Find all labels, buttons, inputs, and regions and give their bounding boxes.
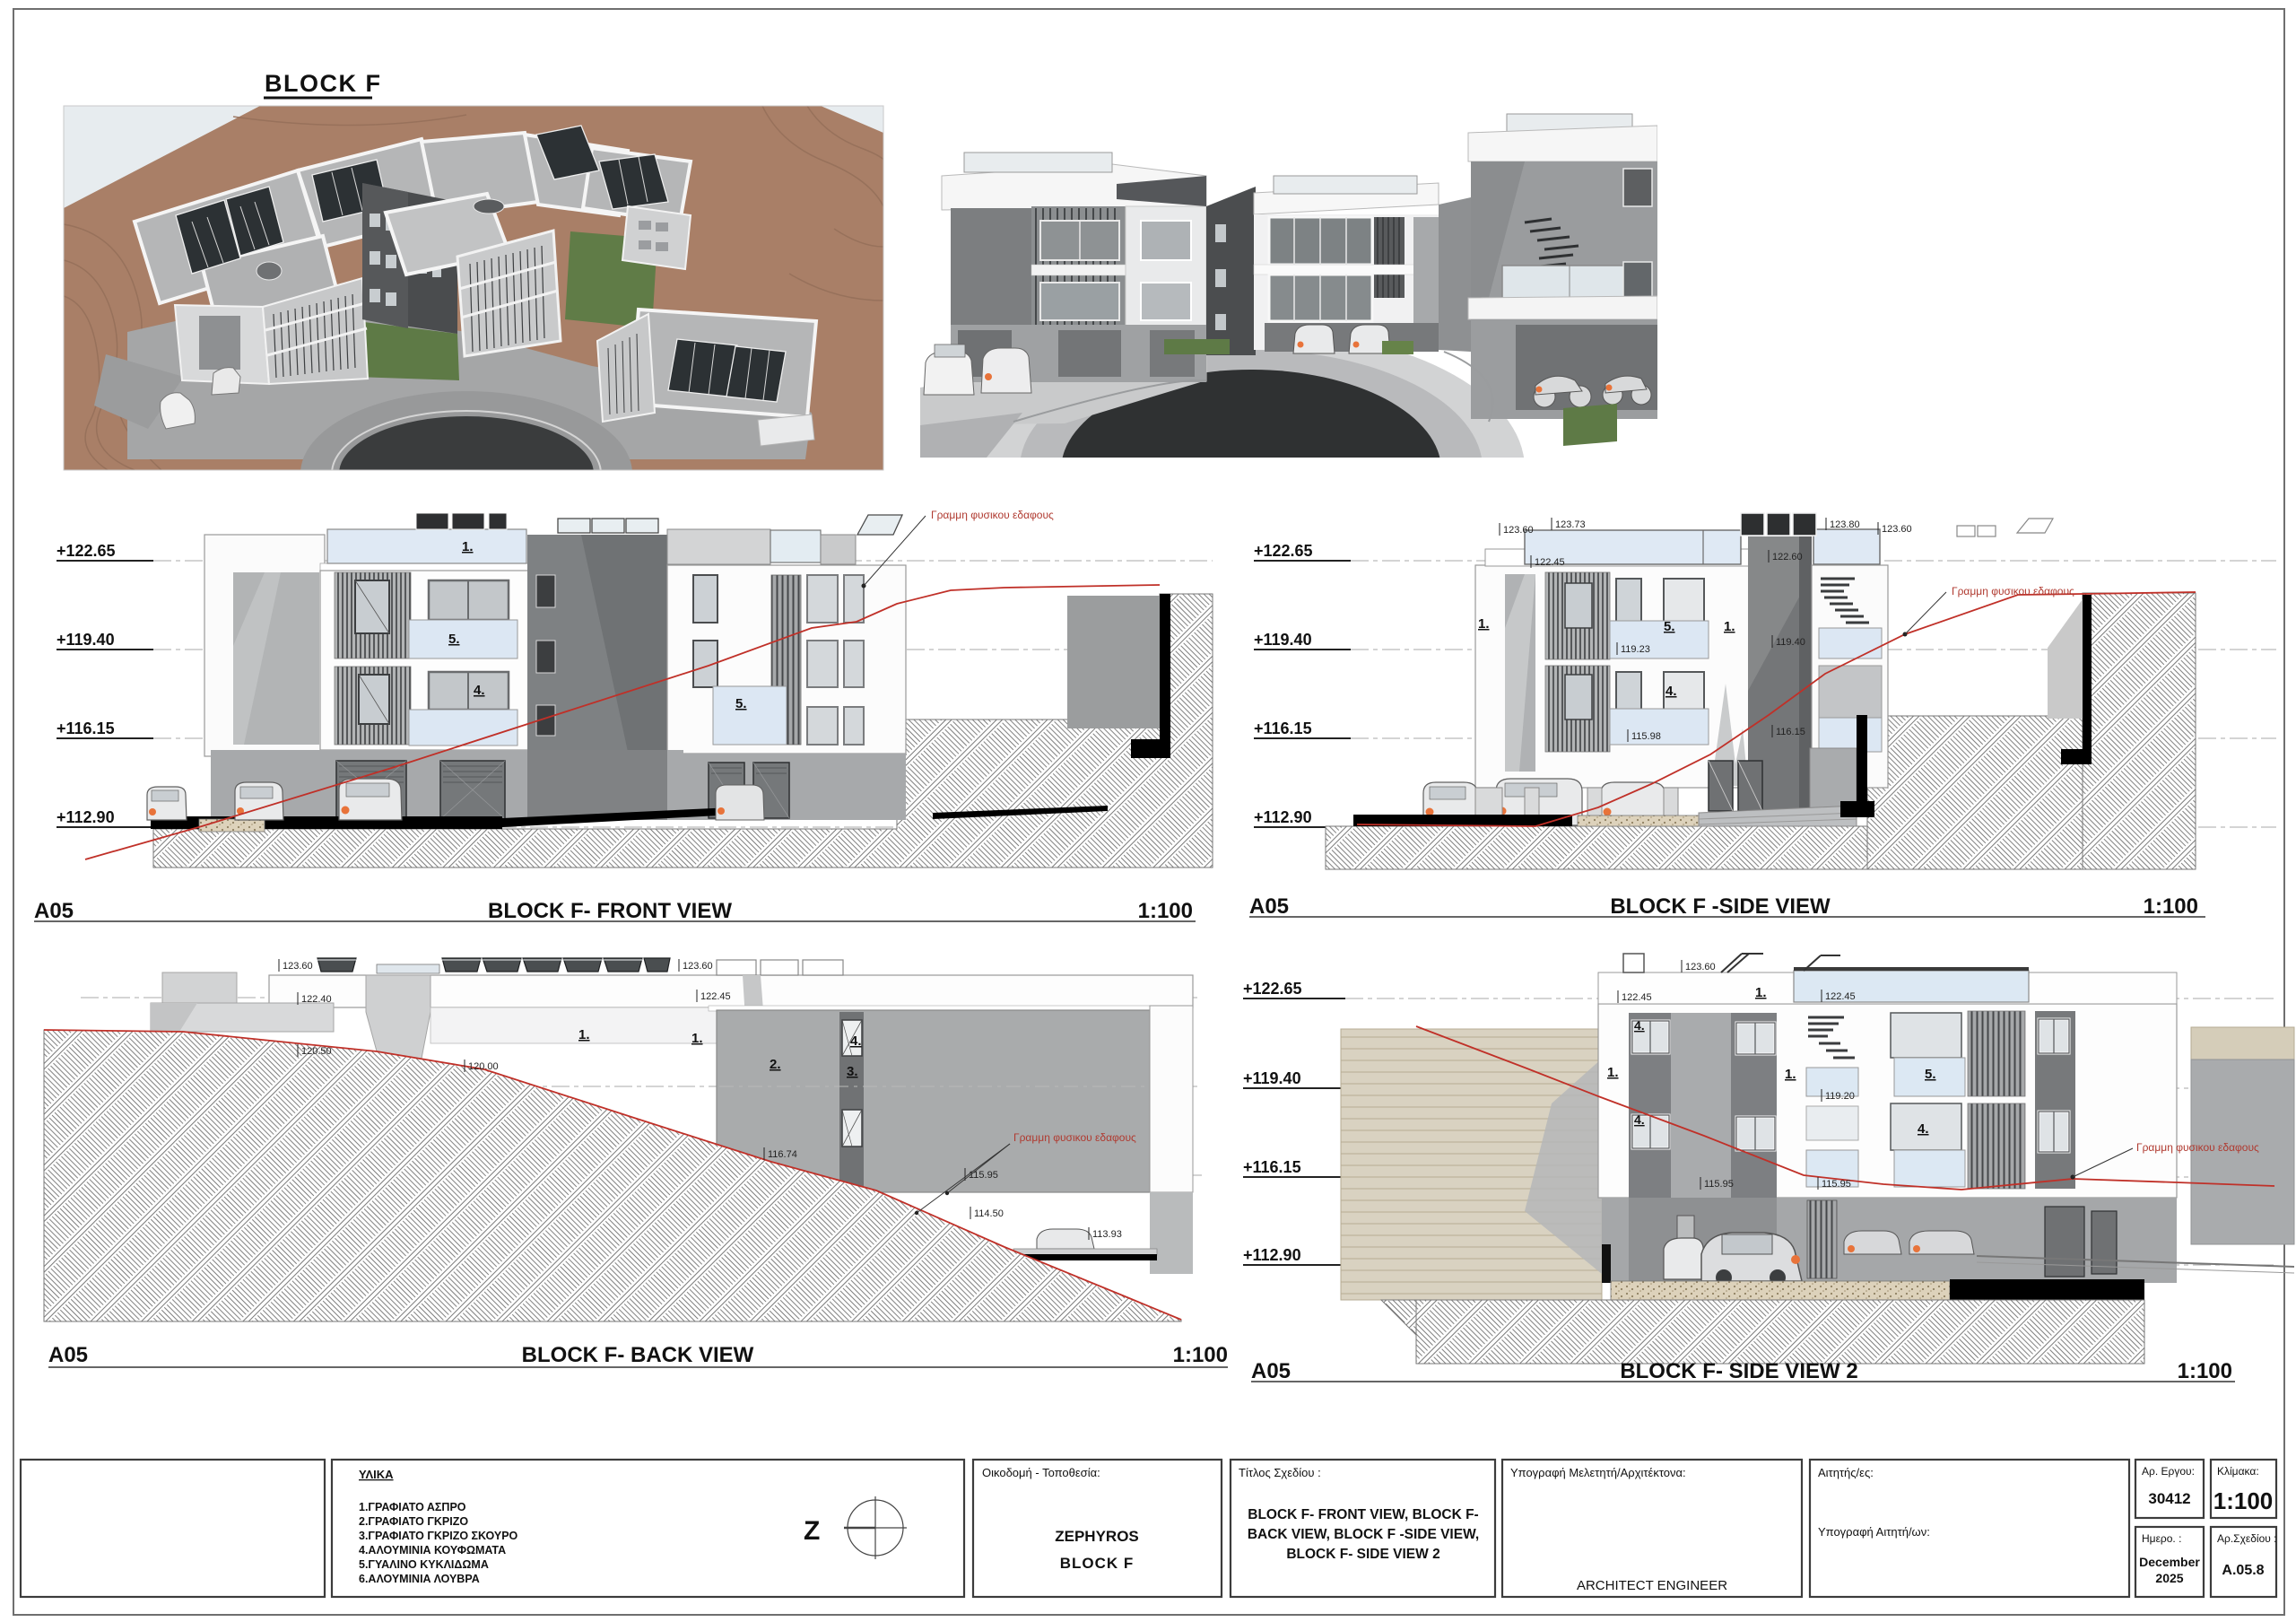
svg-text:123.60: 123.60	[1685, 962, 1716, 972]
svg-text:A.05.8: A.05.8	[2222, 1563, 2264, 1578]
svg-text:Αρ.Σχεδίου :: Αρ.Σχεδίου :	[2217, 1532, 2276, 1545]
svg-text:1.: 1.	[1724, 619, 1735, 634]
svg-text:123.60: 123.60	[1503, 525, 1534, 536]
svg-text:+122.65: +122.65	[1254, 542, 1313, 560]
svg-text:113.93: 113.93	[1092, 1229, 1122, 1240]
svg-text:116.74: 116.74	[768, 1149, 797, 1160]
svg-text:+119.40: +119.40	[1243, 1069, 1301, 1087]
svg-text:BLOCK F: BLOCK F	[1060, 1555, 1135, 1572]
svg-text:115.98: 115.98	[1631, 731, 1661, 742]
svg-text:5.: 5.	[448, 632, 460, 647]
svg-text:115.95: 115.95	[1822, 1179, 1851, 1190]
svg-text:+119.40: +119.40	[1254, 631, 1312, 649]
svg-text:1:100: 1:100	[1138, 899, 1193, 923]
svg-text:Υπογραφή Αιτητή/ων:: Υπογραφή Αιτητή/ων:	[1818, 1525, 1930, 1539]
svg-text:1.: 1.	[1607, 1065, 1619, 1080]
svg-text:4.ΑΛΟΥΜΙΝΙΑ ΚΟΥΦΩΜΑΤΑ: 4.ΑΛΟΥΜΙΝΙΑ ΚΟΥΦΩΜΑΤΑ	[359, 1544, 506, 1557]
svg-text:123.60: 123.60	[283, 961, 313, 972]
svg-text:+112.90: +112.90	[1243, 1246, 1301, 1264]
svg-text:122.45: 122.45	[1535, 557, 1565, 568]
svg-text:+122.65: +122.65	[57, 542, 116, 560]
svg-text:BLOCK F -SIDE VIEW: BLOCK F -SIDE VIEW	[1610, 894, 1831, 919]
svg-text:1.: 1.	[1755, 985, 1767, 1000]
svg-text:Οικοδομή - Τοποθεσία:: Οικοδομή - Τοποθεσία:	[982, 1466, 1100, 1479]
svg-text:122.45: 122.45	[700, 991, 731, 1002]
svg-text:2025: 2025	[2155, 1571, 2183, 1585]
svg-text:Αρ. Εργου:: Αρ. Εργου:	[2142, 1465, 2195, 1478]
svg-text:3.: 3.	[847, 1064, 858, 1079]
svg-text:5.: 5.	[1664, 619, 1675, 634]
svg-text:1.: 1.	[462, 539, 474, 554]
svg-text:122.45: 122.45	[1825, 991, 1856, 1002]
svg-text:5.: 5.	[735, 696, 747, 711]
svg-text:4.: 4.	[1634, 1018, 1645, 1033]
svg-text:1.ΓΡΑΦΙΑΤΟ ΑΣΠΡΟ: 1.ΓΡΑΦΙΑΤΟ ΑΣΠΡΟ	[359, 1501, 466, 1513]
svg-text:Γραμμη φυσικου εδαφους: Γραμμη φυσικου εδαφους	[2136, 1141, 2259, 1154]
svg-text:120.00: 120.00	[468, 1061, 499, 1072]
svg-text:123.60: 123.60	[683, 961, 713, 972]
svg-text:+112.90: +112.90	[1254, 808, 1312, 826]
svg-text:+116.15: +116.15	[1254, 719, 1312, 737]
svg-text:4.: 4.	[474, 683, 485, 698]
svg-text:1.: 1.	[1785, 1067, 1796, 1082]
svg-text:1.: 1.	[1478, 616, 1490, 632]
svg-text:Αιτητής/ες:: Αιτητής/ες:	[1818, 1466, 1874, 1479]
svg-text:+122.65: +122.65	[1243, 980, 1302, 998]
svg-text:Ημερο. :: Ημερο. :	[2142, 1532, 2181, 1545]
svg-text:BACK VIEW, BLOCK F -SIDE VIEW,: BACK VIEW, BLOCK F -SIDE VIEW,	[1248, 1527, 1479, 1542]
svg-text:1:100: 1:100	[2144, 894, 2198, 919]
svg-text:122.60: 122.60	[1772, 552, 1803, 562]
svg-text:123.80: 123.80	[1830, 519, 1860, 530]
svg-text:A05: A05	[1249, 894, 1289, 919]
svg-text:Υπογραφή Μελετητή/Αρχιτέκτονα:: Υπογραφή Μελετητή/Αρχιτέκτονα:	[1510, 1466, 1686, 1479]
svg-text:119.20: 119.20	[1825, 1091, 1855, 1102]
svg-text:116.15: 116.15	[1776, 727, 1805, 737]
svg-text:A05: A05	[1251, 1359, 1291, 1383]
svg-text:2.ΓΡΑΦΙΑΤΟ ΓΚΡΙΖΟ: 2.ΓΡΑΦΙΑΤΟ ΓΚΡΙΖΟ	[359, 1515, 468, 1528]
svg-text:+112.90: +112.90	[57, 808, 115, 826]
svg-text:Τίτλος Σχεδίου :: Τίτλος Σχεδίου :	[1239, 1466, 1321, 1479]
svg-text:+119.40: +119.40	[57, 631, 115, 649]
svg-text:A05: A05	[48, 1343, 88, 1367]
svg-text:1.: 1.	[578, 1027, 590, 1042]
svg-text:ΥΛΙΚΑ: ΥΛΙΚΑ	[359, 1468, 394, 1481]
svg-text:120.50: 120.50	[301, 1046, 332, 1057]
svg-text:+116.15: +116.15	[57, 719, 115, 737]
svg-text:Z: Z	[804, 1516, 820, 1546]
svg-text:114.50: 114.50	[974, 1208, 1004, 1219]
svg-text:5.ΓΥΑΛΙΝΟ ΚΥΚΛΙΔΩΜΑ: 5.ΓΥΑΛΙΝΟ ΚΥΚΛΙΔΩΜΑ	[359, 1558, 489, 1571]
svg-text:1:100: 1:100	[2213, 1487, 2274, 1514]
svg-text:30412: 30412	[2148, 1490, 2190, 1507]
svg-text:119.40: 119.40	[1776, 637, 1805, 648]
svg-text:6.ΑΛΟΥΜΙΝΙΑ ΛΟΥΒΡΑ: 6.ΑΛΟΥΜΙΝΙΑ ΛΟΥΒΡΑ	[359, 1573, 480, 1585]
svg-text:4.: 4.	[1665, 684, 1677, 699]
svg-text:1:100: 1:100	[2178, 1359, 2232, 1383]
svg-text:A05: A05	[34, 899, 74, 923]
svg-text:123.73: 123.73	[1555, 519, 1586, 530]
svg-text:5.: 5.	[1925, 1067, 1936, 1082]
svg-text:BLOCK F- BACK VIEW: BLOCK F- BACK VIEW	[522, 1343, 754, 1367]
svg-text:BLOCK F: BLOCK F	[265, 70, 381, 97]
svg-text:ARCHITECT ENGINEER: ARCHITECT ENGINEER	[1577, 1578, 1727, 1593]
svg-text:Γραμμη φυσικου εδαφους: Γραμμη φυσικου εδαφους	[1013, 1131, 1136, 1144]
svg-text:123.60: 123.60	[1882, 524, 1912, 535]
svg-text:Κλίμακα:: Κλίμακα:	[2217, 1465, 2259, 1478]
svg-text:Γραμμη φυσικου εδαφους: Γραμμη φυσικου εδαφους	[931, 509, 1054, 521]
svg-text:2.: 2.	[770, 1057, 781, 1072]
svg-text:BLOCK F- FRONT VIEW, BLOCK F-: BLOCK F- FRONT VIEW, BLOCK F-	[1248, 1507, 1478, 1522]
svg-text:+116.15: +116.15	[1243, 1158, 1301, 1176]
svg-text:BLOCK F- SIDE VIEW 2: BLOCK F- SIDE VIEW 2	[1620, 1359, 1857, 1383]
svg-text:1:100: 1:100	[1173, 1343, 1228, 1367]
svg-text:December: December	[2139, 1555, 2200, 1569]
svg-text:ZEPHYROS: ZEPHYROS	[1055, 1528, 1139, 1545]
svg-text:Γραμμη φυσικου εδαφους: Γραμμη φυσικου εδαφους	[1952, 585, 2074, 597]
svg-text:122.45: 122.45	[1622, 992, 1652, 1003]
svg-text:4.: 4.	[1634, 1112, 1645, 1127]
svg-text:4.: 4.	[850, 1033, 862, 1049]
svg-text:BLOCK F- SIDE VIEW 2: BLOCK F- SIDE VIEW 2	[1286, 1547, 1439, 1562]
svg-text:3.ΓΡΑΦΙΑΤΟ ΓΚΡΙΖΟ ΣΚΟΥΡΟ: 3.ΓΡΑΦΙΑΤΟ ΓΚΡΙΖΟ ΣΚΟΥΡΟ	[359, 1530, 518, 1542]
svg-text:4.: 4.	[1918, 1121, 1929, 1137]
svg-text:122.40: 122.40	[301, 994, 332, 1005]
svg-text:115.95: 115.95	[1704, 1179, 1734, 1190]
svg-text:BLOCK F- FRONT VIEW: BLOCK F- FRONT VIEW	[488, 899, 732, 923]
svg-text:1.: 1.	[691, 1031, 703, 1046]
svg-text:119.23: 119.23	[1621, 644, 1650, 655]
